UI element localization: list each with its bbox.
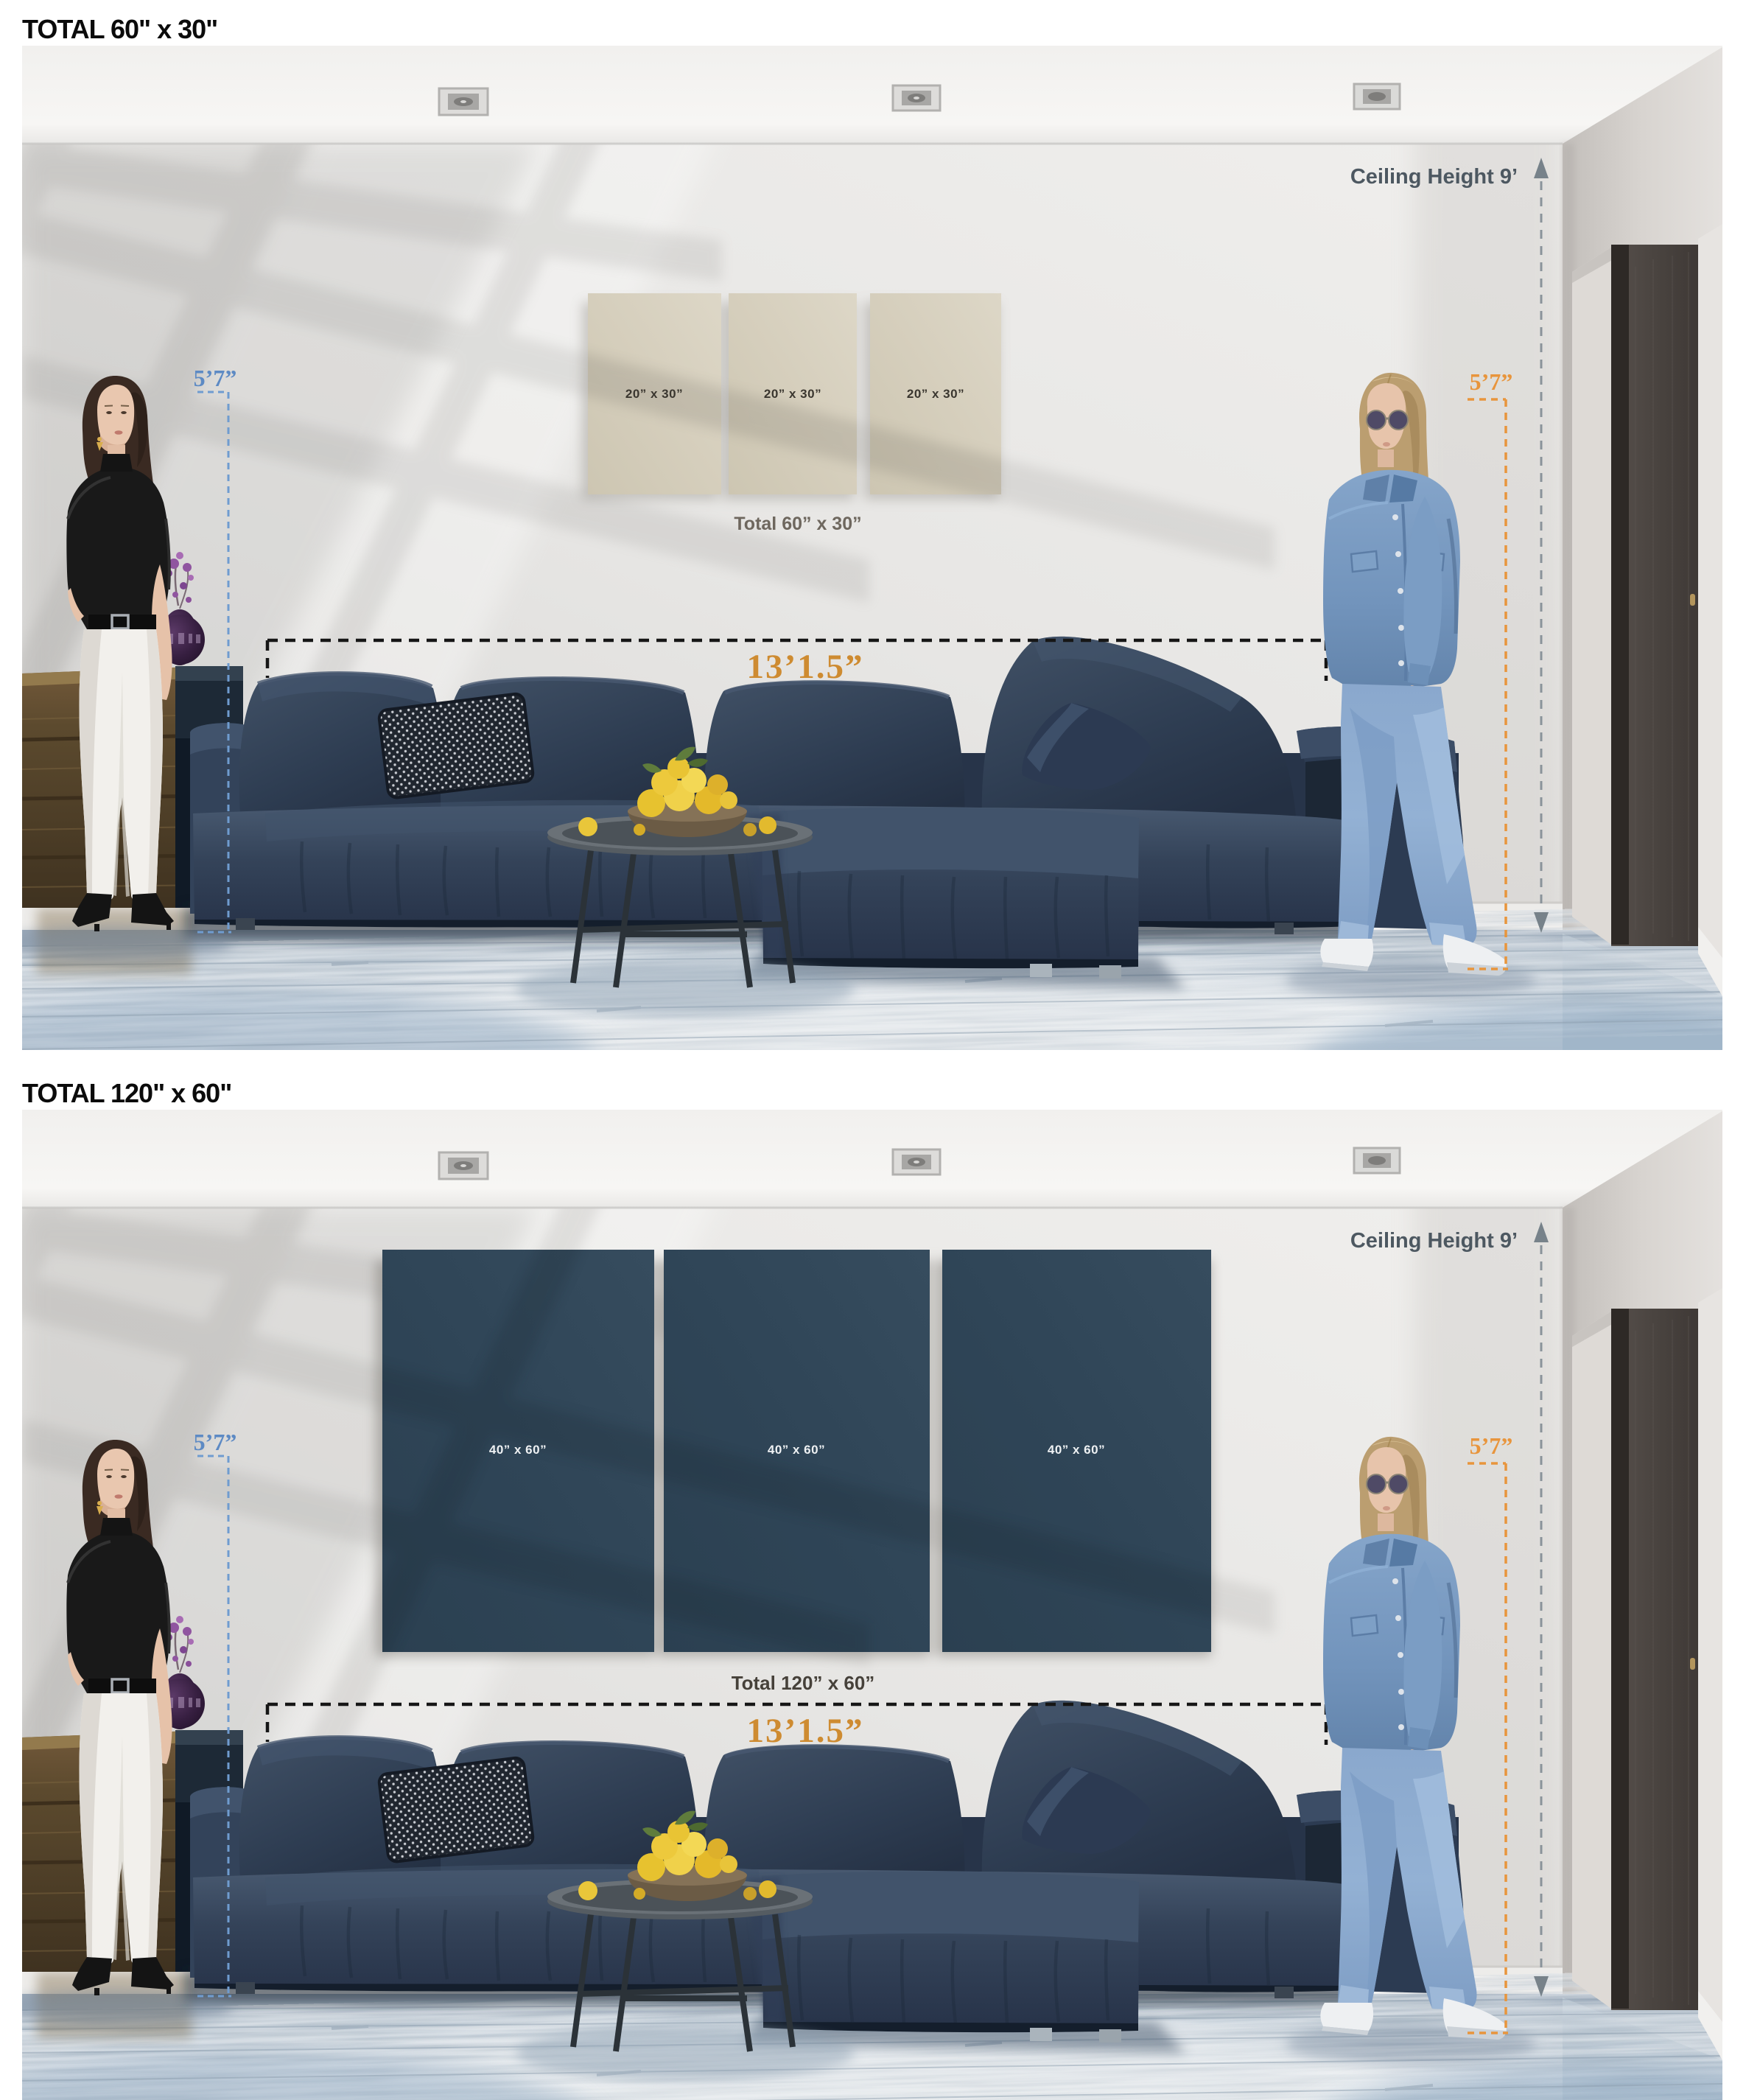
svg-text:40” x 60”: 40” x 60” bbox=[1048, 1443, 1105, 1457]
svg-text:40” x 60”: 40” x 60” bbox=[489, 1443, 547, 1457]
svg-text:40” x 60”: 40” x 60” bbox=[768, 1443, 825, 1457]
svg-text:20” x 30”: 20” x 30” bbox=[764, 387, 821, 401]
svg-text:20” x 30”: 20” x 30” bbox=[625, 387, 683, 401]
svg-text:20” x 30”: 20” x 30” bbox=[907, 387, 964, 401]
svg-text:Total 60” x 30”: Total 60” x 30” bbox=[734, 514, 861, 534]
svg-text:Total 120” x 60”: Total 120” x 60” bbox=[732, 1672, 875, 1694]
